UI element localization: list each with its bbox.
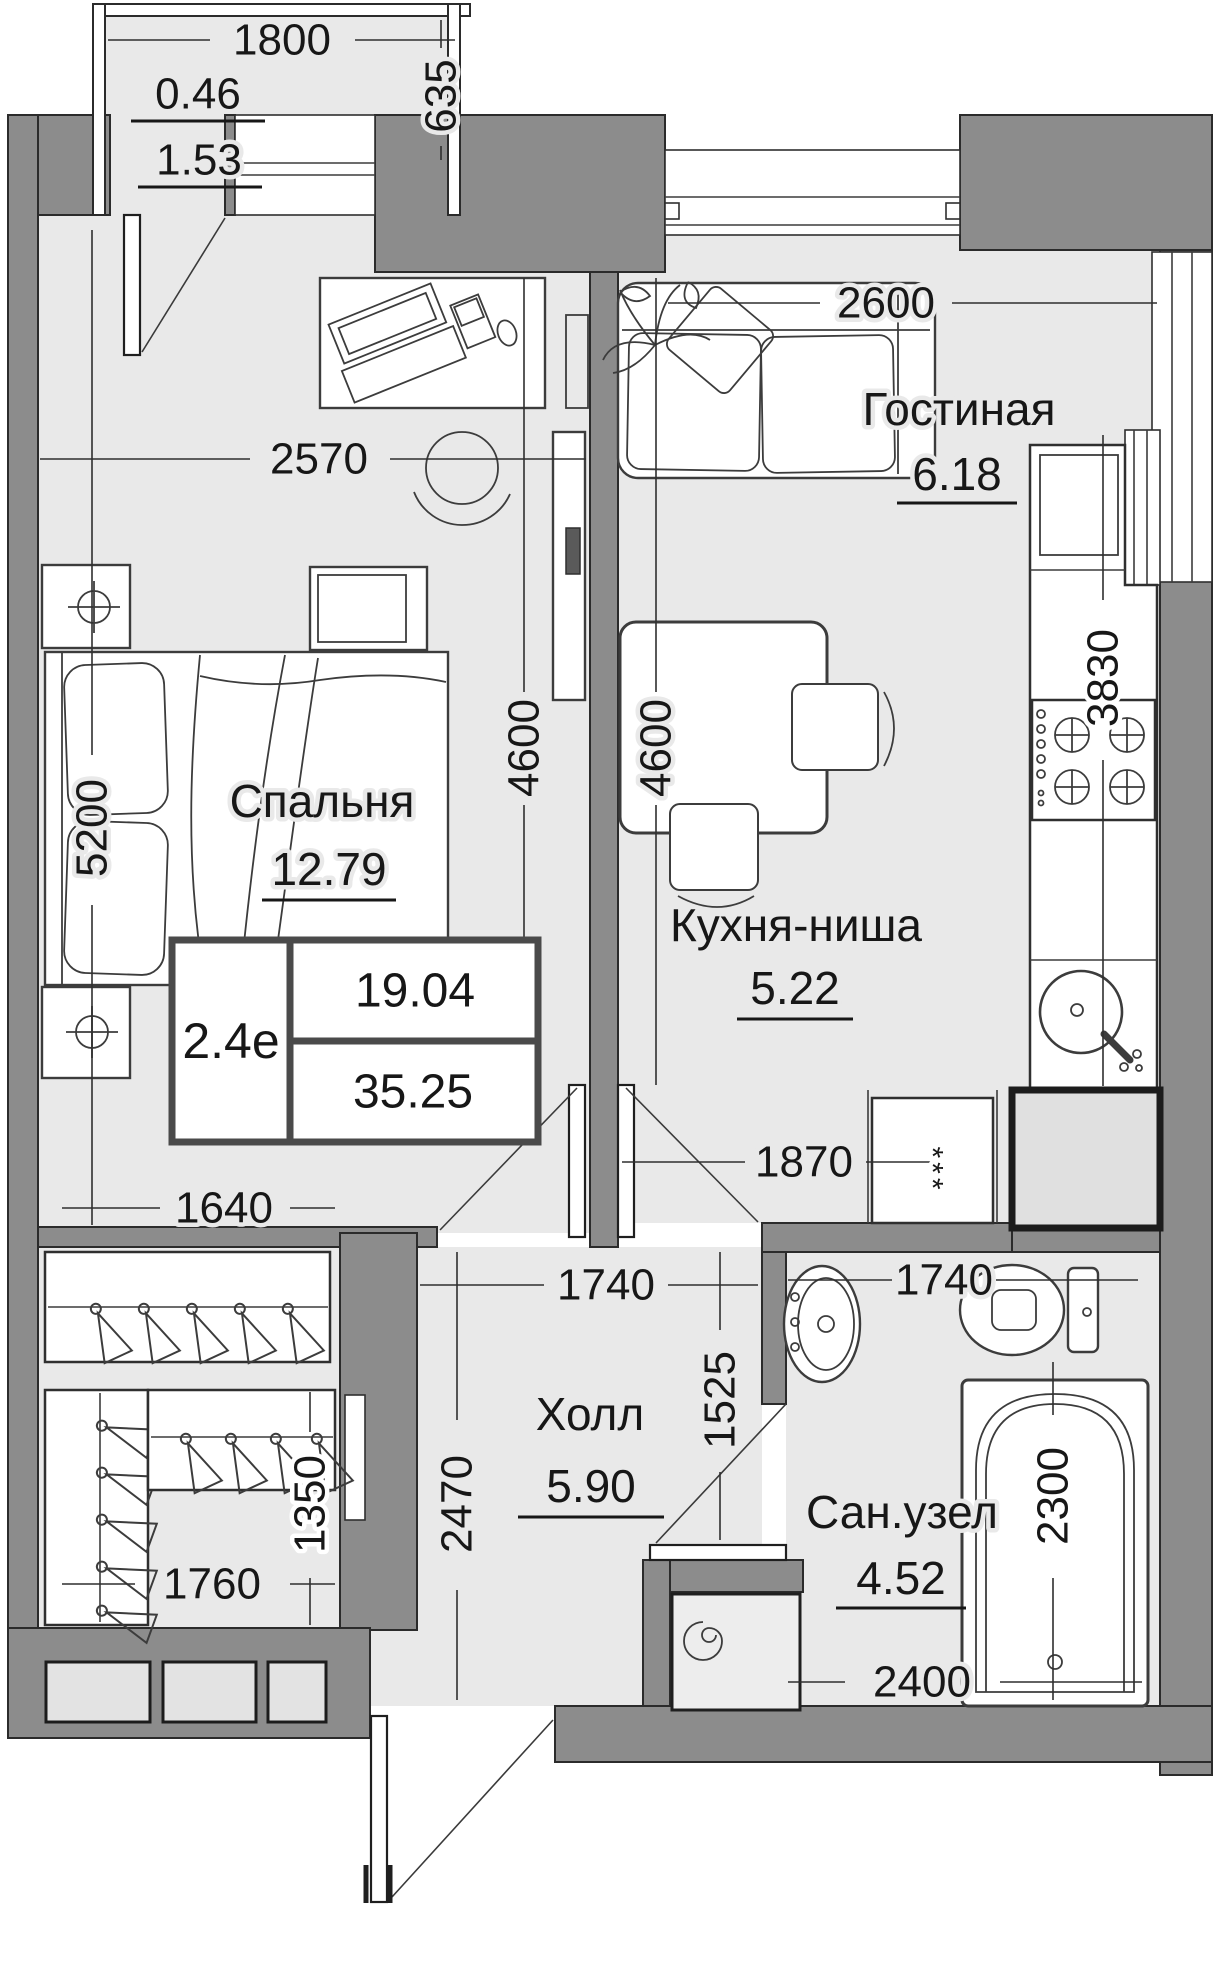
wall-inset-3 bbox=[268, 1662, 326, 1722]
wardrobe-door-panel bbox=[345, 1395, 365, 1520]
dim-living-width: 2600 bbox=[837, 279, 935, 328]
bathroom-name: Сан.узел bbox=[806, 1486, 998, 1538]
dim-kitchen-width: 1870 bbox=[755, 1138, 853, 1187]
wall-inset-2 bbox=[163, 1662, 256, 1722]
bathroom-top-wall-right bbox=[1012, 1228, 1160, 1252]
desk-icon bbox=[320, 268, 545, 408]
dim-kitchen-height: 4600 bbox=[632, 699, 681, 797]
bedroom-kitchen-partition bbox=[590, 272, 618, 1247]
living-room-name: Гостиная bbox=[862, 383, 1055, 435]
bathroom-left-wall bbox=[762, 1252, 786, 1404]
balcony-parapet-left bbox=[93, 4, 105, 215]
bottom-wall bbox=[555, 1706, 1212, 1762]
dim-hall-width: 1740 bbox=[557, 1261, 655, 1310]
dim-bath-bottom: 2400 bbox=[873, 1658, 971, 1707]
dim-tub-length: 2300 bbox=[1029, 1447, 1078, 1545]
living-room-window bbox=[665, 150, 960, 235]
hall-area: 5.90 bbox=[546, 1460, 636, 1512]
floor-plan-page: 2.4е 19.04 35.25 1800 635 0.46 1.53 2600… bbox=[0, 0, 1217, 1979]
dim-bedroom-width: 2570 bbox=[270, 435, 368, 484]
vent-mark: *** bbox=[916, 1146, 949, 1193]
bathroom-sink-icon bbox=[784, 1266, 860, 1382]
dim-bath-width: 1740 bbox=[895, 1256, 993, 1305]
top-wall-pier bbox=[375, 115, 665, 272]
bedroom-name: Спальня bbox=[230, 775, 415, 827]
bathroom-top-wall bbox=[762, 1223, 1012, 1252]
dim-balcony-depth: 635 bbox=[417, 59, 466, 132]
floor-plan: 2.4е 19.04 35.25 1800 635 0.46 1.53 2600… bbox=[0, 0, 1217, 1979]
dim-bedroom-partition-height: 4600 bbox=[500, 699, 549, 797]
balcony-parapet-top bbox=[93, 4, 470, 16]
dim-hall-height: 2470 bbox=[433, 1455, 482, 1553]
balcony-area-full: 1.53 bbox=[156, 136, 242, 185]
kitchen-area: 5.22 bbox=[750, 962, 840, 1014]
unit-type-label: 2.4е bbox=[182, 1013, 279, 1069]
dim-balcony-width: 1800 bbox=[233, 16, 331, 65]
bedroom-area: 12.79 bbox=[271, 843, 386, 895]
entrance-door bbox=[366, 1706, 553, 1903]
top-wall-right bbox=[960, 115, 1212, 250]
dim-closet-depth: 1350 bbox=[286, 1455, 335, 1553]
unit-living-area: 19.04 bbox=[355, 965, 475, 1018]
kitchen-name: Кухня-ниша bbox=[670, 899, 922, 951]
hall-name: Холл bbox=[536, 1388, 644, 1440]
wall-inset-1 bbox=[46, 1662, 150, 1722]
hall-floor-notch bbox=[371, 1630, 417, 1706]
vent-shaft bbox=[1012, 1090, 1160, 1228]
left-outer-wall bbox=[8, 115, 38, 1738]
dim-hall-pass: 1525 bbox=[696, 1351, 745, 1449]
bench-icon bbox=[310, 567, 427, 650]
nightstand-icon bbox=[42, 987, 130, 1078]
dim-counter-run: 3830 bbox=[1079, 629, 1128, 727]
entrance-opening bbox=[373, 1706, 553, 1762]
balcony-area-reduced: 0.46 bbox=[155, 70, 241, 119]
dim-wardrobe-width: 1640 bbox=[175, 1184, 273, 1233]
washer-niche-left-wall bbox=[643, 1560, 670, 1712]
dim-bedroom-height: 5200 bbox=[68, 779, 117, 877]
dim-closet-width: 1760 bbox=[163, 1560, 261, 1609]
nightstand-icon bbox=[42, 565, 130, 648]
unit-info-table: 2.4е 19.04 35.25 bbox=[172, 940, 538, 1142]
living-room-area: 6.18 bbox=[912, 448, 1002, 500]
unit-total-area: 35.25 bbox=[353, 1066, 473, 1119]
bedroom-balcony-window bbox=[235, 115, 375, 215]
washing-machine-icon bbox=[672, 1594, 800, 1710]
bathroom-area: 4.52 bbox=[856, 1552, 946, 1604]
